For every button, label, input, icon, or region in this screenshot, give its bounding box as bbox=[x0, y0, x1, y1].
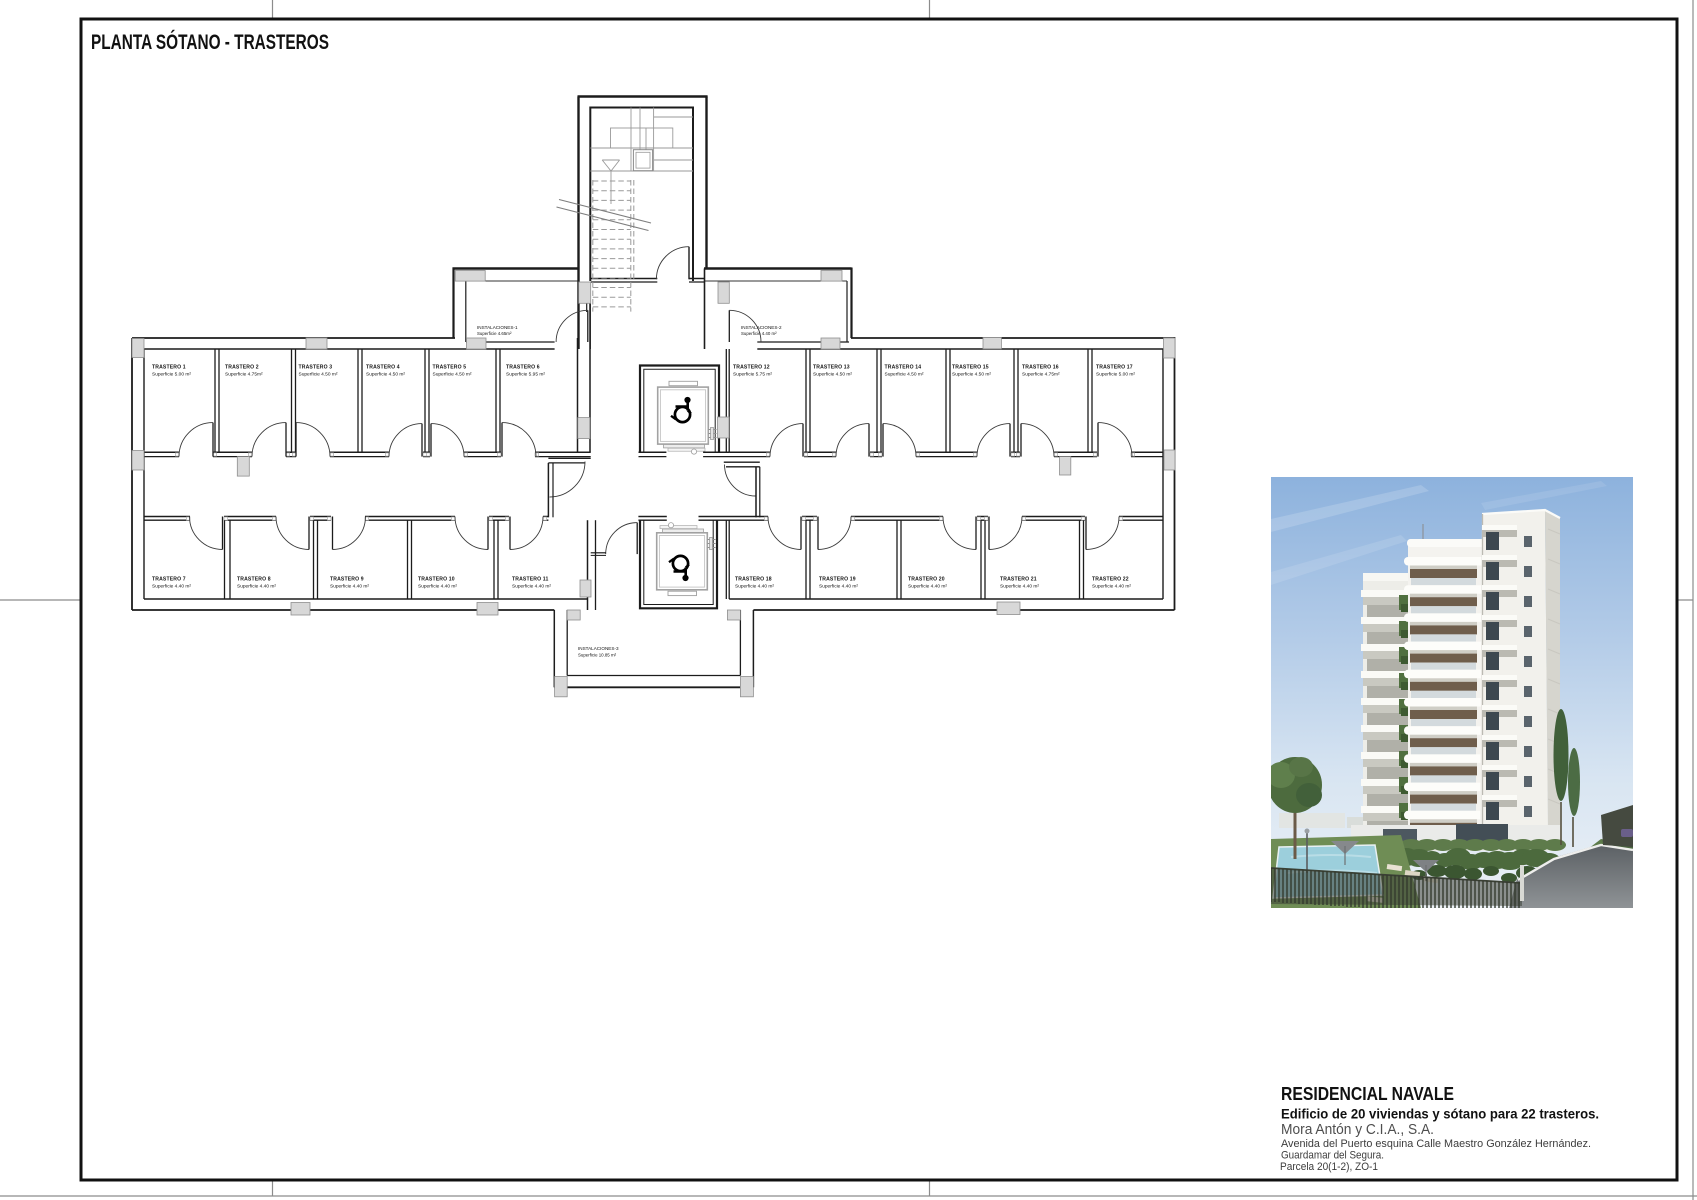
svg-text:TRASTERO 9: TRASTERO 9 bbox=[330, 577, 364, 583]
svg-text:INSTALACIONES-2: INSTALACIONES-2 bbox=[741, 325, 782, 330]
svg-text:TRASTERO 16: TRASTERO 16 bbox=[1022, 365, 1059, 371]
svg-text:Superficie 4.50 m²: Superficie 4.50 m² bbox=[952, 372, 991, 378]
svg-text:Superficie 4.50 m²: Superficie 4.50 m² bbox=[813, 372, 852, 378]
svg-text:TRASTERO 17: TRASTERO 17 bbox=[1096, 365, 1133, 371]
svg-text:TRASTERO 4: TRASTERO 4 bbox=[366, 365, 400, 371]
svg-text:Superficie 4.40 m²: Superficie 4.40 m² bbox=[741, 331, 777, 336]
svg-text:INSTALACIONES-1: INSTALACIONES-1 bbox=[477, 325, 518, 330]
svg-text:TRASTERO 5: TRASTERO 5 bbox=[433, 365, 467, 371]
svg-text:TRASTERO 20: TRASTERO 20 bbox=[908, 577, 945, 583]
svg-text:TRASTERO 15: TRASTERO 15 bbox=[952, 365, 989, 371]
svg-text:TRASTERO 14: TRASTERO 14 bbox=[885, 365, 922, 371]
svg-text:TRASTERO 19: TRASTERO 19 bbox=[819, 577, 856, 583]
svg-text:Superficie 5.75 m²: Superficie 5.75 m² bbox=[733, 372, 772, 378]
svg-text:TRASTERO 18: TRASTERO 18 bbox=[735, 577, 772, 583]
svg-text:Superficie 5.95 m²: Superficie 5.95 m² bbox=[506, 372, 545, 378]
svg-text:TRASTERO 13: TRASTERO 13 bbox=[813, 365, 850, 371]
svg-text:Superficie 4.40 m²: Superficie 4.40 m² bbox=[418, 584, 457, 590]
svg-text:RESIDENCIAL NAVALE: RESIDENCIAL NAVALE bbox=[1281, 1084, 1454, 1104]
svg-text:TRASTERO 11: TRASTERO 11 bbox=[512, 577, 548, 583]
svg-text:TRASTERO 10: TRASTERO 10 bbox=[418, 577, 455, 583]
svg-text:Superficie 10.85 m²: Superficie 10.85 m² bbox=[578, 653, 617, 658]
svg-text:Superficie 4.50 m²: Superficie 4.50 m² bbox=[366, 372, 405, 378]
svg-text:TRASTERO 21: TRASTERO 21 bbox=[1000, 577, 1037, 583]
svg-text:Superficie 5.00 m²: Superficie 5.00 m² bbox=[1096, 372, 1135, 378]
svg-text:TRASTERO 12: TRASTERO 12 bbox=[733, 365, 770, 371]
svg-text:TRASTERO 7: TRASTERO 7 bbox=[152, 577, 186, 583]
svg-text:Superficie 4.40 m²: Superficie 4.40 m² bbox=[237, 584, 276, 590]
svg-text:PLANTA SÓTANO - TRASTEROS: PLANTA SÓTANO - TRASTEROS bbox=[91, 30, 329, 54]
svg-text:Superficie 4.50 m²: Superficie 4.50 m² bbox=[885, 372, 924, 378]
svg-text:Superficie 4.40 m²: Superficie 4.40 m² bbox=[819, 584, 858, 590]
svg-text:Superficie 4.40 m²: Superficie 4.40 m² bbox=[735, 584, 774, 590]
svg-text:Superficie 4.50 m²: Superficie 4.50 m² bbox=[433, 372, 472, 378]
svg-text:Parcela 20(1-2), ZO-1: Parcela 20(1-2), ZO-1 bbox=[1280, 1161, 1378, 1173]
svg-text:Guardamar del Segura.: Guardamar del Segura. bbox=[1281, 1150, 1384, 1162]
svg-text:Superficie 4.50 m²: Superficie 4.50 m² bbox=[299, 372, 338, 378]
svg-text:Superficie 4.75m²: Superficie 4.75m² bbox=[225, 372, 263, 378]
svg-text:TRASTERO 6: TRASTERO 6 bbox=[506, 365, 540, 371]
svg-text:Avenida del Puerto esquina Cal: Avenida del Puerto esquina Calle Maestro… bbox=[1281, 1138, 1591, 1150]
svg-text:TRASTERO 8: TRASTERO 8 bbox=[237, 577, 271, 583]
svg-text:Mora Antón y C.I.A., S.A.: Mora Antón y C.I.A., S.A. bbox=[1281, 1122, 1434, 1138]
svg-text:TRASTERO 22: TRASTERO 22 bbox=[1092, 577, 1129, 583]
svg-text:Superficie 4.40 m²: Superficie 4.40 m² bbox=[908, 584, 947, 590]
svg-text:Edificio de 20 viviendas y sót: Edificio de 20 viviendas y sótano para 2… bbox=[1281, 1106, 1599, 1122]
svg-text:Superficie 4.40 m²: Superficie 4.40 m² bbox=[1000, 584, 1039, 590]
svg-text:INSTALACIONES-3: INSTALACIONES-3 bbox=[578, 646, 619, 651]
svg-text:TRASTERO 2: TRASTERO 2 bbox=[225, 365, 259, 371]
svg-text:Superficie 4.40 m²: Superficie 4.40 m² bbox=[1092, 584, 1131, 590]
svg-text:Superficie 4.65m²: Superficie 4.65m² bbox=[477, 331, 512, 336]
svg-text:Superficie 4.40 m²: Superficie 4.40 m² bbox=[330, 584, 369, 590]
svg-text:Superficie 4.75m²: Superficie 4.75m² bbox=[1022, 372, 1060, 378]
svg-text:TRASTERO 3: TRASTERO 3 bbox=[299, 365, 333, 371]
svg-text:Superficie 5.00 m²: Superficie 5.00 m² bbox=[152, 372, 191, 378]
svg-text:Superficie 4.40 m²: Superficie 4.40 m² bbox=[152, 584, 191, 590]
svg-text:TRASTERO 1: TRASTERO 1 bbox=[152, 365, 186, 371]
svg-text:Superficie 4.40 m²: Superficie 4.40 m² bbox=[512, 584, 551, 590]
